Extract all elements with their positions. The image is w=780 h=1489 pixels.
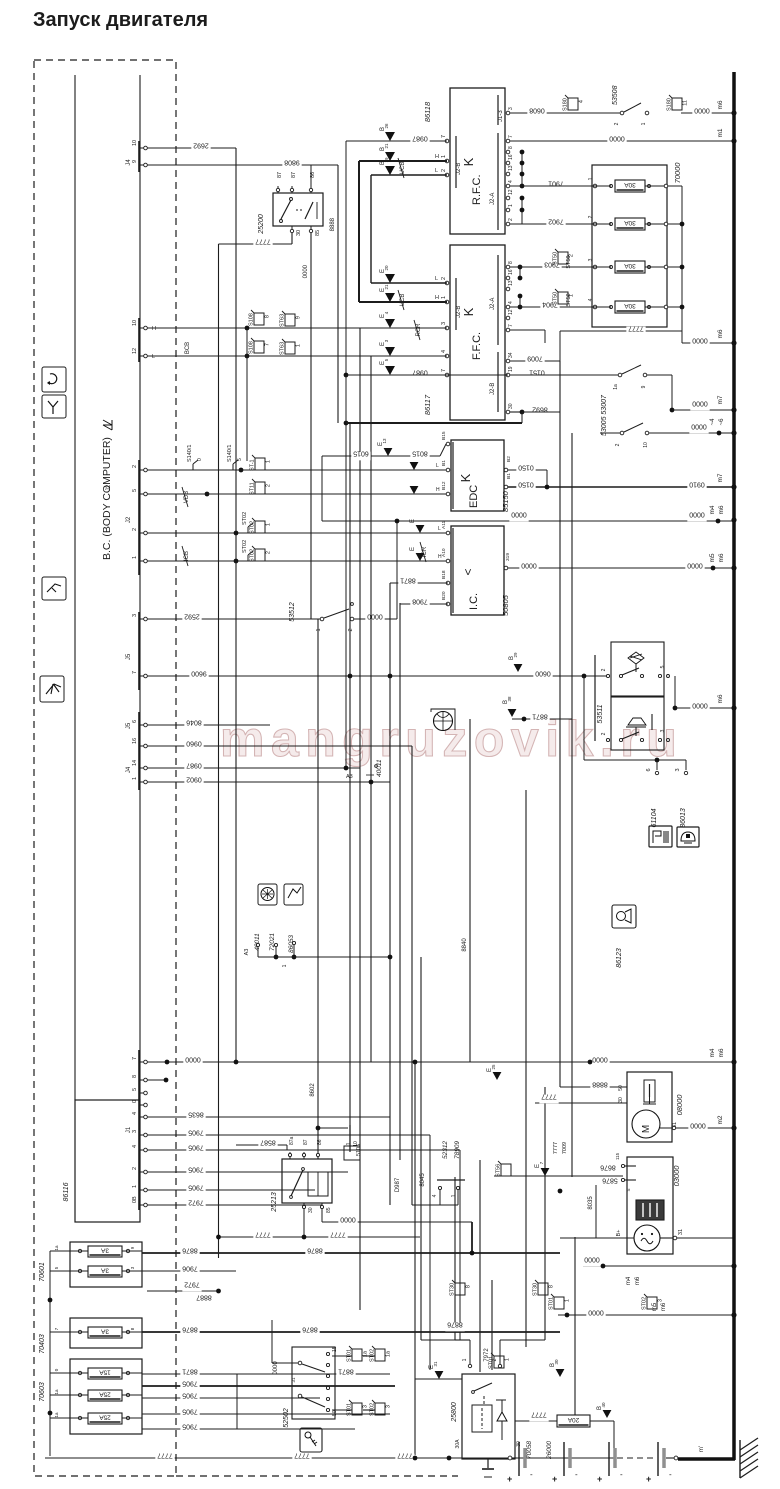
svg-text:8871: 8871: [400, 576, 416, 583]
svg-text:ST02: ST02: [242, 540, 248, 553]
svg-text:+: +: [552, 1474, 557, 1484]
svg-text:J2-B: J2-B: [490, 383, 496, 395]
svg-text:ST02: ST02: [250, 549, 256, 562]
svg-text:25800: 25800: [451, 1402, 458, 1423]
svg-text:8888: 8888: [592, 1080, 608, 1087]
svg-text:ST30: ST30: [450, 1283, 456, 1296]
svg-text:8876: 8876: [182, 1246, 198, 1253]
svg-text:16: 16: [132, 738, 138, 744]
svg-text:m6: m6: [718, 1048, 725, 1057]
svg-text:7777: 7777: [531, 1410, 547, 1417]
svg-text:0000: 0000: [340, 1215, 356, 1222]
svg-text:0B: 0B: [132, 1196, 138, 1203]
svg-text:m1: m1: [717, 128, 724, 137]
svg-text:30: 30: [618, 1097, 624, 1103]
svg-text:5: 5: [660, 665, 666, 668]
svg-text:87: 87: [277, 172, 283, 178]
svg-text:m7: m7: [717, 395, 724, 404]
svg-text:B12: B12: [441, 481, 447, 490]
svg-text:7905: 7905: [188, 1183, 204, 1190]
svg-text:m6: m6: [717, 329, 724, 338]
svg-text:72021: 72021: [269, 933, 276, 951]
svg-text:20A: 20A: [567, 1416, 579, 1423]
svg-text:1: 1: [132, 777, 138, 780]
svg-text:ST50: ST50: [566, 293, 572, 306]
svg-text:m4: m4: [709, 1048, 716, 1057]
svg-text:0000: 0000: [687, 561, 703, 568]
svg-text:-: -: [530, 1470, 533, 1479]
svg-text:ST63: ST63: [280, 314, 286, 327]
svg-text:L: L: [438, 526, 441, 532]
svg-text:7009: 7009: [562, 1142, 568, 1154]
svg-text:1: 1: [296, 344, 302, 347]
svg-text:53005 53007: 53005 53007: [601, 394, 608, 436]
svg-text:6: 6: [646, 768, 652, 771]
svg-text:B+: B+: [616, 1230, 622, 1237]
svg-text:2: 2: [601, 732, 607, 735]
svg-text:29: 29: [513, 652, 518, 658]
svg-text:0000: 0000: [584, 1255, 600, 1262]
svg-text:M: M: [641, 1125, 652, 1133]
svg-text:0150: 0150: [518, 480, 534, 487]
svg-text:A10: A10: [441, 548, 447, 557]
svg-text:4: 4: [441, 350, 447, 353]
svg-text:10: 10: [132, 320, 138, 326]
svg-text:4: 4: [588, 298, 594, 301]
svg-text:m7: m7: [717, 473, 724, 482]
svg-text:1a: 1a: [54, 1389, 59, 1395]
svg-text:1: 1: [266, 460, 272, 463]
svg-text:87: 87: [303, 1139, 309, 1145]
svg-text:53508: 53508: [612, 85, 619, 105]
svg-text:8876: 8876: [447, 1320, 463, 1327]
svg-text:0: 0: [197, 458, 203, 461]
svg-text:ST63: ST63: [280, 342, 286, 355]
svg-text:B2: B2: [506, 456, 512, 462]
svg-text:J1-3: J1-3: [498, 110, 504, 122]
svg-text:11: 11: [683, 100, 689, 106]
svg-text:ST11: ST11: [250, 482, 256, 495]
svg-text:1: 1: [282, 964, 288, 967]
svg-text:m6: m6: [635, 1276, 641, 1285]
svg-text:S140/1: S140/1: [227, 445, 233, 462]
svg-text:1: 1: [132, 1185, 138, 1188]
svg-text:0150: 0150: [518, 463, 534, 470]
svg-text:03000: 03000: [672, 1165, 681, 1187]
svg-text:H: H: [438, 554, 442, 560]
svg-text:5876: 5876: [602, 1176, 618, 1183]
svg-text:8871: 8871: [182, 1367, 198, 1374]
svg-text:7009: 7009: [527, 354, 543, 361]
svg-text:7: 7: [508, 135, 514, 138]
svg-text:7777: 7777: [553, 1142, 559, 1154]
svg-text:52502: 52502: [283, 1408, 290, 1428]
svg-text:8888: 8888: [330, 217, 336, 231]
svg-text:7777: 7777: [294, 1451, 310, 1458]
svg-text:8035: 8035: [588, 1196, 594, 1210]
svg-text:3: 3: [588, 258, 594, 261]
svg-text:1: 1: [316, 628, 322, 631]
svg-text:70058: 70058: [526, 1441, 533, 1459]
svg-text:2: 2: [348, 628, 354, 631]
svg-text:13: 13: [382, 438, 387, 444]
svg-text:20: 20: [384, 265, 389, 271]
svg-text:1: 1: [441, 296, 447, 299]
svg-text:1: 1: [346, 1142, 352, 1145]
svg-text:9: 9: [296, 316, 302, 319]
svg-text:1a: 1a: [386, 1350, 392, 1357]
svg-text:8876: 8876: [307, 1246, 323, 1253]
svg-text:3: 3: [658, 1299, 664, 1302]
svg-text:0987: 0987: [412, 134, 428, 141]
svg-text:S140/1: S140/1: [187, 445, 193, 462]
svg-text:-: -: [575, 1470, 578, 1479]
svg-text:25A: 25A: [99, 1413, 111, 1420]
svg-text:2: 2: [266, 484, 272, 487]
svg-text:0000: 0000: [692, 399, 708, 406]
svg-text:A11: A11: [441, 520, 447, 529]
svg-text:~6: ~6: [719, 418, 725, 426]
svg-text:0000: 0000: [588, 1308, 604, 1315]
svg-text:+: +: [597, 1474, 602, 1484]
svg-text:m6: m6: [717, 100, 724, 109]
svg-text:L: L: [435, 276, 438, 282]
svg-text:30: 30: [508, 403, 514, 409]
svg-text:3: 3: [675, 768, 681, 771]
svg-text:L: L: [435, 168, 438, 174]
svg-text:5: 5: [132, 489, 138, 492]
svg-text:3: 3: [363, 1405, 369, 1408]
svg-text:8: 8: [132, 1075, 138, 1078]
svg-text:0910: 0910: [689, 480, 705, 487]
svg-text:0000: 0000: [691, 422, 707, 429]
svg-text:H: H: [152, 326, 156, 332]
svg-text:0960: 0960: [186, 739, 202, 746]
svg-text:78909: 78909: [454, 1141, 461, 1159]
svg-text:61104: 61104: [651, 808, 658, 827]
svg-text:7: 7: [441, 135, 447, 138]
svg-text:4: 4: [579, 100, 585, 103]
svg-text:7972: 7972: [188, 1198, 204, 1205]
svg-text:J2-B: J2-B: [456, 306, 462, 318]
svg-text:86117: 86117: [423, 394, 432, 415]
svg-text:6: 6: [132, 720, 138, 723]
svg-text:J5: J5: [126, 653, 132, 660]
svg-text:10: 10: [643, 442, 649, 448]
svg-text:30: 30: [554, 1359, 559, 1365]
svg-text:J2-A: J2-A: [490, 298, 496, 310]
svg-text:87: 87: [291, 172, 297, 178]
svg-text:8602: 8602: [310, 1083, 316, 1097]
svg-text:0000: 0000: [692, 336, 708, 343]
svg-text:0000: 0000: [521, 561, 537, 568]
svg-text:ST01: ST01: [489, 1356, 495, 1369]
svg-text:0000: 0000: [609, 134, 625, 141]
svg-text:8: 8: [508, 146, 514, 149]
svg-text:12: 12: [508, 309, 514, 315]
svg-text:0000: 0000: [185, 1055, 201, 1062]
svg-text:m6: m6: [718, 553, 725, 562]
svg-text:0000: 0000: [303, 264, 309, 278]
svg-text:ST30: ST30: [533, 1283, 539, 1296]
svg-text:7905: 7905: [188, 1165, 204, 1172]
svg-text:21: 21: [384, 143, 389, 149]
svg-text:1: 1: [565, 1299, 571, 1302]
svg-text:7: 7: [441, 369, 447, 372]
svg-text:50805: 50805: [501, 594, 510, 616]
svg-text:B1: B1: [506, 473, 512, 479]
svg-text:7777: 7777: [541, 1092, 557, 1099]
svg-text:ST02: ST02: [642, 1297, 648, 1310]
svg-text:0608: 0608: [529, 106, 545, 113]
svg-text:1: 1: [508, 204, 514, 207]
svg-text:85: 85: [326, 1207, 332, 1213]
svg-text:<: <: [461, 568, 475, 575]
svg-text:S: S: [626, 1188, 631, 1191]
svg-text:B1: B1: [441, 460, 447, 466]
svg-text:2692: 2692: [193, 141, 209, 148]
svg-text:53512: 53512: [289, 602, 296, 622]
svg-text:m4: m4: [709, 505, 716, 514]
svg-text:86: 86: [317, 1139, 323, 1145]
svg-text:16: 16: [508, 269, 514, 275]
svg-text:30A: 30A: [624, 262, 636, 269]
svg-text:m5: m5: [709, 553, 716, 562]
svg-text:8876: 8876: [182, 1325, 198, 1332]
svg-text:7: 7: [265, 343, 271, 346]
svg-text:08000: 08000: [675, 1094, 684, 1116]
svg-text:70000: 70000: [673, 162, 682, 184]
svg-text:L: L: [152, 354, 155, 360]
svg-text:ST01: ST01: [347, 1403, 353, 1416]
svg-text:6015: 6015: [353, 449, 369, 456]
svg-text:19: 19: [508, 366, 514, 372]
svg-text:1a: 1a: [54, 1412, 59, 1418]
svg-text:ST50: ST50: [553, 292, 559, 305]
svg-text:3: 3: [132, 1130, 138, 1133]
svg-text:7905: 7905: [182, 1422, 198, 1429]
svg-text:m2: m2: [717, 1115, 724, 1124]
svg-text:8587: 8587: [260, 1138, 276, 1145]
svg-text:26: 26: [384, 123, 389, 129]
svg-text:~4: ~4: [710, 418, 716, 426]
svg-text:10: 10: [353, 1141, 359, 1147]
svg-text:5: 5: [237, 458, 243, 461]
svg-text:J2-A: J2-A: [490, 193, 496, 205]
svg-text:S180: S180: [667, 98, 673, 111]
svg-text:1: 1: [505, 1358, 511, 1361]
svg-text:1: 1: [462, 1358, 468, 1361]
svg-text:+: +: [646, 1474, 651, 1484]
svg-text:4: 4: [132, 1145, 138, 1148]
svg-text:ST56: ST56: [496, 1164, 502, 1177]
svg-text:7905: 7905: [182, 1407, 198, 1414]
svg-text:86013: 86013: [680, 808, 687, 828]
svg-text:0000: 0000: [367, 612, 383, 619]
svg-text:ST02: ST02: [370, 1403, 376, 1416]
svg-text:15A: 15A: [99, 1368, 111, 1375]
svg-text:8676: 8676: [600, 1163, 616, 1170]
svg-text:ST02: ST02: [370, 1349, 376, 1362]
svg-text:7905: 7905: [182, 1379, 198, 1386]
svg-text:12: 12: [508, 189, 514, 195]
svg-text:87a: 87a: [289, 1136, 295, 1145]
svg-text:m6: m6: [661, 1302, 667, 1311]
svg-text:2592: 2592: [184, 612, 200, 619]
svg-text:E: E: [410, 547, 416, 551]
svg-text:S108: S108: [249, 313, 255, 326]
svg-text:0000: 0000: [511, 510, 527, 517]
svg-text:2: 2: [615, 443, 621, 446]
svg-text:3A: 3A: [100, 1327, 109, 1334]
svg-text:4: 4: [508, 180, 514, 183]
svg-text:K: K: [458, 473, 473, 482]
svg-text:9808: 9808: [284, 158, 300, 165]
svg-text:BCB: BCB: [185, 342, 191, 354]
svg-text:8840: 8840: [462, 938, 468, 952]
svg-text:10: 10: [132, 140, 138, 146]
svg-text:Запуск двигателя: Запуск двигателя: [33, 9, 208, 31]
svg-text:30A: 30A: [624, 181, 636, 188]
svg-text:H: H: [436, 487, 440, 493]
svg-text:8692: 8692: [532, 405, 548, 412]
svg-text:3: 3: [660, 729, 666, 732]
svg-text:B15: B15: [441, 431, 447, 440]
svg-text:R.F.C.: R.F.C.: [471, 174, 483, 205]
svg-text:8: 8: [466, 1285, 472, 1288]
svg-text:7777: 7777: [628, 324, 644, 331]
svg-text:1: 1: [451, 1194, 457, 1197]
svg-text:30A: 30A: [455, 1439, 461, 1449]
svg-text:E: E: [410, 519, 416, 523]
svg-text:m6: m6: [718, 505, 725, 514]
svg-text:4: 4: [432, 1194, 438, 1197]
svg-text:L: L: [436, 463, 439, 469]
svg-text:7: 7: [132, 1057, 138, 1060]
svg-text:40011: 40011: [376, 759, 383, 777]
svg-text:2: 2: [266, 551, 272, 554]
svg-text:7905: 7905: [188, 1128, 204, 1135]
svg-text:3A: 3A: [100, 1266, 109, 1273]
svg-text:15: 15: [332, 1346, 338, 1352]
svg-text:30A: 30A: [624, 302, 636, 309]
svg-text:1: 1: [132, 556, 138, 559]
svg-text:0600: 0600: [535, 669, 551, 676]
svg-text:0151: 0151: [529, 368, 545, 375]
svg-text:m': m': [699, 1446, 705, 1452]
svg-text:31: 31: [433, 1361, 438, 1367]
svg-text:3: 3: [508, 107, 514, 110]
svg-text:0000: 0000: [689, 510, 705, 517]
svg-text:13: 13: [508, 280, 514, 286]
svg-text:19: 19: [384, 157, 389, 163]
svg-text:70601: 70601: [39, 1262, 46, 1282]
svg-text:0987: 0987: [412, 368, 428, 375]
svg-text:8887: 8887: [196, 1293, 212, 1300]
svg-text:7902: 7902: [548, 217, 564, 224]
svg-text:7777: 7777: [330, 1230, 346, 1237]
svg-text:30: 30: [308, 1207, 314, 1213]
svg-text:J2: J2: [106, 484, 112, 491]
svg-text:30: 30: [296, 230, 302, 236]
svg-text:8: 8: [549, 1285, 555, 1288]
svg-text:2: 2: [441, 169, 447, 172]
svg-text:3: 3: [441, 322, 447, 325]
svg-text:B20: B20: [441, 591, 447, 600]
svg-text:+: +: [507, 1474, 512, 1484]
svg-text:85: 85: [315, 230, 321, 236]
svg-text:S180: S180: [563, 98, 569, 111]
svg-text:-: -: [620, 1470, 623, 1479]
svg-text:0000: 0000: [694, 106, 710, 113]
svg-text:70603: 70603: [39, 1382, 46, 1402]
svg-text:F.F.C.: F.F.C.: [471, 332, 483, 360]
svg-text:25A: 25A: [99, 1390, 111, 1397]
svg-text:53511: 53511: [597, 704, 604, 723]
svg-text:A3: A3: [244, 949, 250, 956]
svg-text:85150: 85150: [501, 490, 510, 512]
svg-text:2: 2: [601, 668, 607, 671]
svg-text:0000: 0000: [592, 1055, 608, 1062]
svg-text:8876: 8876: [302, 1325, 318, 1332]
svg-text:12: 12: [132, 348, 138, 354]
svg-text:3A: 3A: [100, 1246, 109, 1253]
svg-text:26000: 26000: [546, 1441, 553, 1460]
svg-text:7908: 7908: [412, 597, 428, 604]
svg-text:7777: 7777: [255, 1230, 271, 1237]
svg-text:2: 2: [132, 528, 138, 531]
svg-text:H: H: [435, 154, 439, 160]
svg-text:25: 25: [491, 1064, 496, 1070]
svg-text:0902: 0902: [186, 775, 202, 782]
svg-text:7905: 7905: [188, 1143, 204, 1150]
svg-text:8045: 8045: [420, 1173, 426, 1187]
svg-text:m4: m4: [626, 1276, 632, 1285]
svg-text:J4: J4: [126, 766, 132, 773]
svg-text:ST-1: ST-1: [250, 459, 256, 471]
svg-text:9: 9: [132, 160, 138, 163]
svg-text:ST01: ST01: [347, 1349, 353, 1362]
svg-text:ST01: ST01: [549, 1297, 555, 1310]
svg-text:31: 31: [291, 1377, 296, 1383]
svg-text:16: 16: [508, 154, 514, 160]
svg-text:8871: 8871: [532, 712, 548, 719]
svg-text:86123: 86123: [616, 948, 623, 968]
svg-text:1a: 1a: [613, 384, 619, 390]
svg-text:7901: 7901: [548, 179, 564, 186]
svg-text:7777: 7777: [397, 1451, 413, 1458]
svg-text:9: 9: [641, 385, 647, 388]
svg-text:mangruzovik.ru: mangruzovik.ru: [220, 711, 683, 767]
svg-text:K: K: [461, 307, 476, 316]
svg-text:7905: 7905: [182, 1391, 198, 1398]
svg-text:4: 4: [508, 301, 514, 304]
svg-text:0000: 0000: [692, 701, 708, 708]
svg-text:-: -: [669, 1470, 672, 1479]
svg-text:8: 8: [265, 315, 271, 318]
svg-text:B18: B18: [441, 570, 447, 579]
svg-text:8046: 8046: [186, 718, 202, 725]
svg-text:9600: 9600: [191, 669, 207, 676]
svg-text:70403: 70403: [39, 1334, 46, 1354]
svg-text:5: 5: [132, 1088, 138, 1091]
svg-text:8: 8: [508, 261, 514, 264]
svg-text:EDC: EDC: [468, 485, 480, 508]
svg-text:0987: 0987: [186, 761, 202, 768]
svg-text:2: 2: [132, 465, 138, 468]
svg-text:2: 2: [132, 1167, 138, 1170]
svg-text:1: 1: [641, 122, 647, 125]
